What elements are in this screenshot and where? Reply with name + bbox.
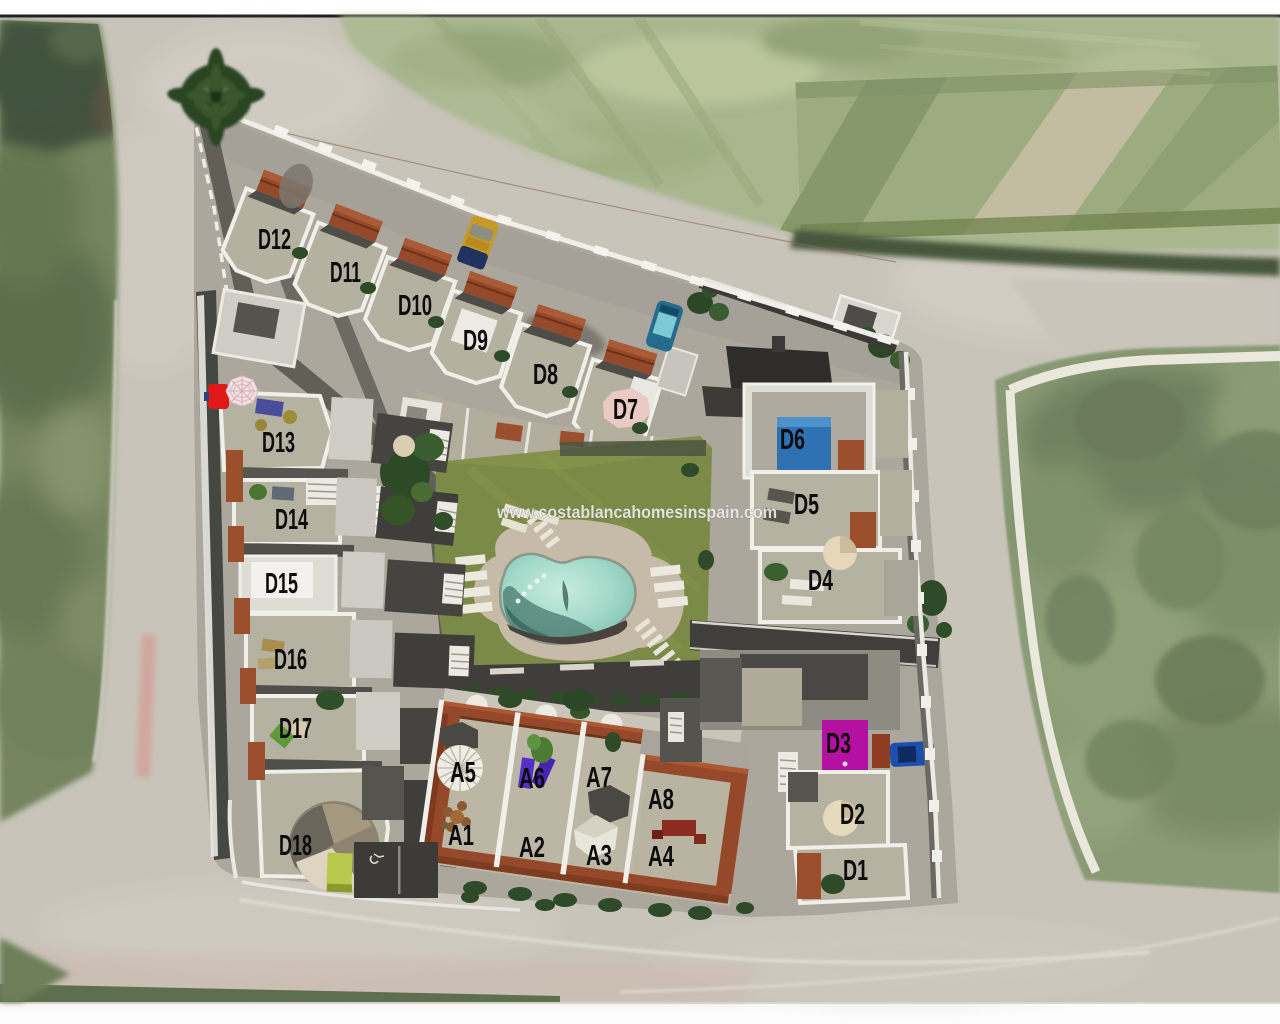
svg-text:D16: D16 bbox=[274, 644, 307, 676]
svg-text:A3: A3 bbox=[586, 840, 612, 872]
svg-text:www.costablancahomesinspain.co: www.costablancahomesinspain.com bbox=[496, 502, 777, 522]
svg-text:D12: D12 bbox=[258, 224, 291, 256]
svg-text:D3: D3 bbox=[826, 728, 851, 760]
svg-text:D14: D14 bbox=[275, 504, 308, 536]
svg-text:D18: D18 bbox=[279, 830, 312, 862]
svg-text:D13: D13 bbox=[262, 427, 295, 459]
svg-text:D9: D9 bbox=[463, 325, 488, 357]
svg-text:D15: D15 bbox=[265, 568, 298, 600]
svg-text:D5: D5 bbox=[794, 489, 819, 521]
svg-text:A1: A1 bbox=[448, 820, 474, 852]
svg-text:D4: D4 bbox=[808, 565, 833, 597]
svg-text:D11: D11 bbox=[330, 257, 361, 289]
svg-text:A7: A7 bbox=[586, 762, 612, 794]
svg-text:A8: A8 bbox=[648, 784, 674, 816]
svg-text:D7: D7 bbox=[613, 394, 638, 426]
svg-text:D17: D17 bbox=[279, 713, 312, 745]
svg-text:D1: D1 bbox=[843, 855, 868, 887]
svg-text:D6: D6 bbox=[780, 424, 805, 456]
svg-text:A4: A4 bbox=[648, 841, 674, 873]
svg-text:A2: A2 bbox=[519, 832, 545, 864]
svg-text:D10: D10 bbox=[398, 290, 432, 322]
svg-text:A5: A5 bbox=[450, 757, 476, 789]
svg-text:D8: D8 bbox=[533, 359, 558, 391]
svg-text:D2: D2 bbox=[840, 799, 865, 831]
svg-text:A6: A6 bbox=[519, 763, 545, 795]
